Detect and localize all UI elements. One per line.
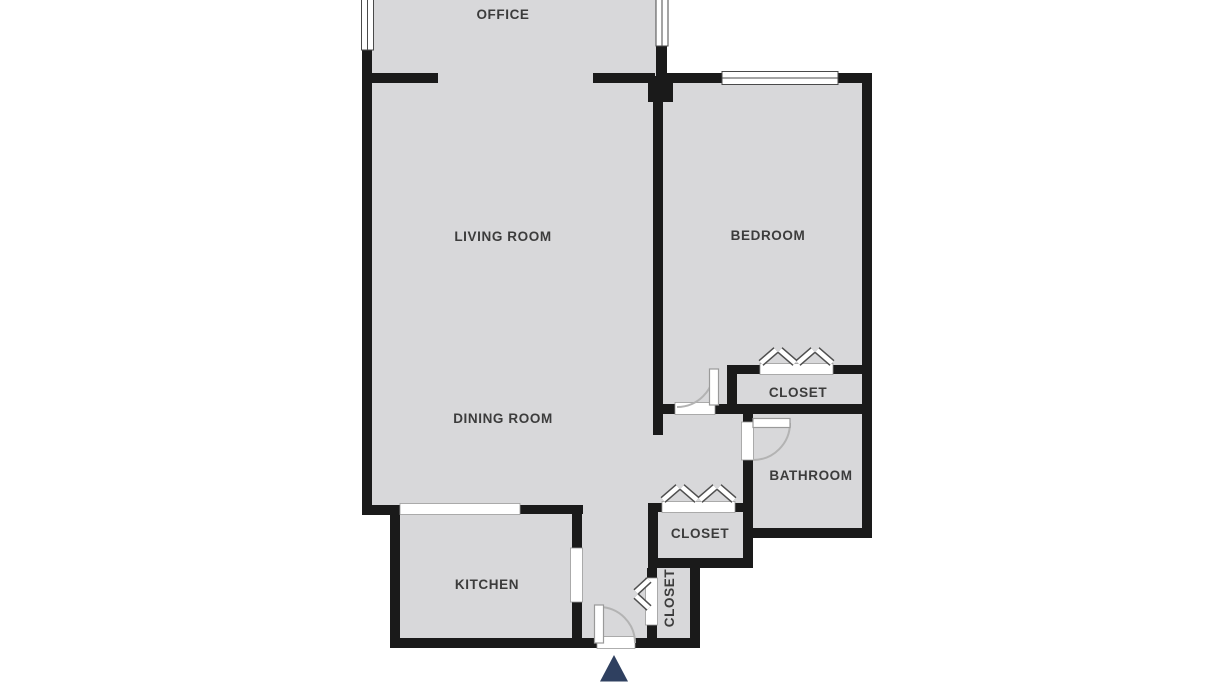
hall-closet-opening — [662, 502, 735, 513]
room-label-hall-closet: CLOSET — [671, 526, 730, 541]
room-bedroom-hall-floor — [655, 410, 750, 568]
wall-segment — [653, 96, 663, 435]
wall-segment — [648, 558, 753, 568]
room-label-office: OFFICE — [476, 7, 529, 22]
room-label-bedroom-closet: CLOSET — [769, 385, 828, 400]
bathroom-door-leaf — [753, 419, 790, 428]
wall-segment — [727, 365, 760, 374]
floorplan-canvas: OFFICE LIVING ROOM BEDROOM DINING ROOM C… — [0, 0, 1216, 684]
wall-segment — [743, 528, 872, 538]
wall-segment — [362, 73, 438, 83]
wall-segment — [743, 404, 753, 422]
bedroom-closet-opening — [760, 364, 833, 375]
wall-segment — [862, 73, 872, 538]
room-label-entry-closet: CLOSET — [662, 569, 677, 628]
wall-segment — [390, 505, 400, 648]
kitchen-side-opening — [571, 548, 583, 602]
wall-segment — [362, 48, 372, 515]
entry-door-leaf — [595, 605, 604, 643]
wall-segment — [572, 602, 582, 638]
wall-segment — [390, 638, 597, 648]
room-kitchen-hall-floor — [395, 505, 658, 648]
wall-segment — [656, 45, 667, 80]
wall-segment — [593, 73, 655, 83]
wall-segment — [743, 460, 753, 568]
bedroom-door-leaf — [710, 369, 719, 405]
wall-segment — [653, 404, 675, 414]
room-floors — [366, 0, 867, 648]
wall-segment — [737, 404, 872, 414]
kitchen-passthrough-opening — [400, 504, 520, 515]
bathroom-door-opening — [742, 422, 754, 460]
wall-segment — [572, 505, 582, 548]
room-label-bathroom: BATHROOM — [769, 468, 852, 483]
room-label-kitchen: KITCHEN — [455, 577, 519, 592]
wall-segment — [690, 558, 700, 648]
room-label-bedroom: BEDROOM — [731, 228, 806, 243]
room-label-living-room: LIVING ROOM — [454, 229, 551, 244]
wall-segment — [647, 623, 657, 648]
wall-segment — [833, 365, 872, 374]
floorplan-page: OFFICE LIVING ROOM BEDROOM DINING ROOM C… — [0, 0, 1216, 684]
room-label-dining-room: DINING ROOM — [453, 411, 553, 426]
wall-segment — [735, 503, 753, 512]
wall-segment — [667, 73, 722, 83]
entrance-arrow-icon — [600, 655, 628, 682]
